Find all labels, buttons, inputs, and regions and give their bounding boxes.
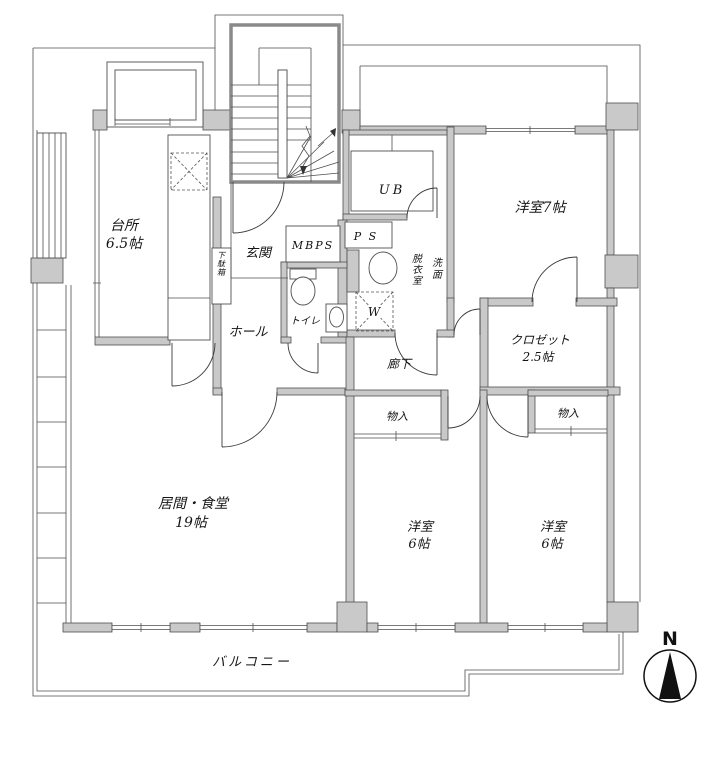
window-living-1	[112, 623, 170, 632]
storage-right-sliding	[535, 426, 607, 436]
washbasin-icon	[369, 252, 397, 284]
ps-label: P S	[353, 230, 378, 243]
kitchen-label: 台所	[110, 218, 140, 234]
window-bedroom-right	[508, 623, 583, 632]
pillar-south-center	[337, 602, 367, 632]
living-dining-size-label: 19帖	[175, 515, 209, 531]
louver-window	[37, 133, 66, 258]
closet-label: クロゼット	[510, 333, 570, 347]
bedroom-center-door	[448, 396, 480, 428]
closet-size-label: 2.5帖	[521, 350, 555, 364]
mbps-label: MBPS	[291, 239, 334, 252]
toilet-label: トイレ	[290, 316, 320, 327]
kitchen-size-label: 6.5帖	[106, 236, 144, 252]
storage-right-label: 物入	[557, 407, 579, 420]
windows	[66, 118, 583, 632]
pillar-east	[605, 255, 638, 288]
hand-sink-icon	[330, 307, 344, 327]
balcony-label: バルコニー	[212, 655, 292, 670]
living-dining-label: 居間・食堂	[158, 496, 230, 512]
floorplan-drawing: 台所 6.5帖 居間・食堂 19帖 洋室7帖 洋室 6帖 洋室 6帖 クロゼット…	[0, 0, 721, 760]
stair-treads-upper	[231, 85, 311, 140]
window-kitchen-west	[93, 130, 101, 337]
bedroom7-door	[454, 309, 480, 335]
bedroom-right-size-label: 6帖	[541, 537, 564, 552]
balcony-outer-rail	[33, 48, 623, 696]
bath-label: UB	[379, 183, 406, 198]
washroom-left-label: 脱衣室	[412, 253, 424, 287]
window-living-2	[200, 623, 307, 632]
window-living-west	[66, 285, 71, 623]
hall-label: ホール	[228, 325, 268, 340]
stairwell	[231, 25, 339, 182]
pillar-se	[607, 602, 638, 632]
bedroom-right-door	[487, 396, 528, 437]
window-bedroom7-north	[486, 126, 575, 134]
window-bedroom-center	[378, 623, 455, 632]
storage-left-sliding	[354, 431, 441, 441]
kitchen-living-door	[172, 343, 215, 386]
compass-north-label: N	[662, 628, 678, 650]
entrance-label: 玄関	[245, 246, 273, 261]
toilet-door	[288, 343, 318, 373]
stair-arrow2-icon	[330, 128, 336, 137]
pillar-ne	[606, 103, 638, 130]
stair-winders	[287, 136, 339, 178]
bathtub-icon	[351, 151, 433, 211]
hall-living-door	[222, 392, 277, 447]
kitchen-counter	[168, 135, 210, 340]
north-alcove-inner	[115, 70, 196, 120]
storage-left-label: 物入	[386, 410, 408, 423]
bedroom-center-size-label: 6帖	[408, 537, 431, 552]
bedroom-center-label: 洋室	[407, 519, 435, 535]
closet-door	[532, 257, 577, 302]
floorplan-page: 台所 6.5帖 居間・食堂 19帖 洋室7帖 洋室 6帖 洋室 6帖 クロゼット…	[0, 0, 721, 760]
bedroom-right-label: 洋室	[540, 519, 568, 535]
toilet-icon	[291, 277, 315, 305]
built-ins	[107, 62, 433, 340]
washroom-right-label: 洗面	[432, 257, 444, 281]
corridor-label: 廊下	[387, 357, 413, 371]
west-side-strip	[37, 133, 66, 603]
washer-label: W	[368, 305, 382, 319]
entrance-door	[233, 182, 284, 233]
bedroom7-label: 洋室7帖	[515, 200, 568, 216]
compass-icon: N	[644, 628, 696, 702]
stair-treads-lower	[231, 152, 278, 174]
